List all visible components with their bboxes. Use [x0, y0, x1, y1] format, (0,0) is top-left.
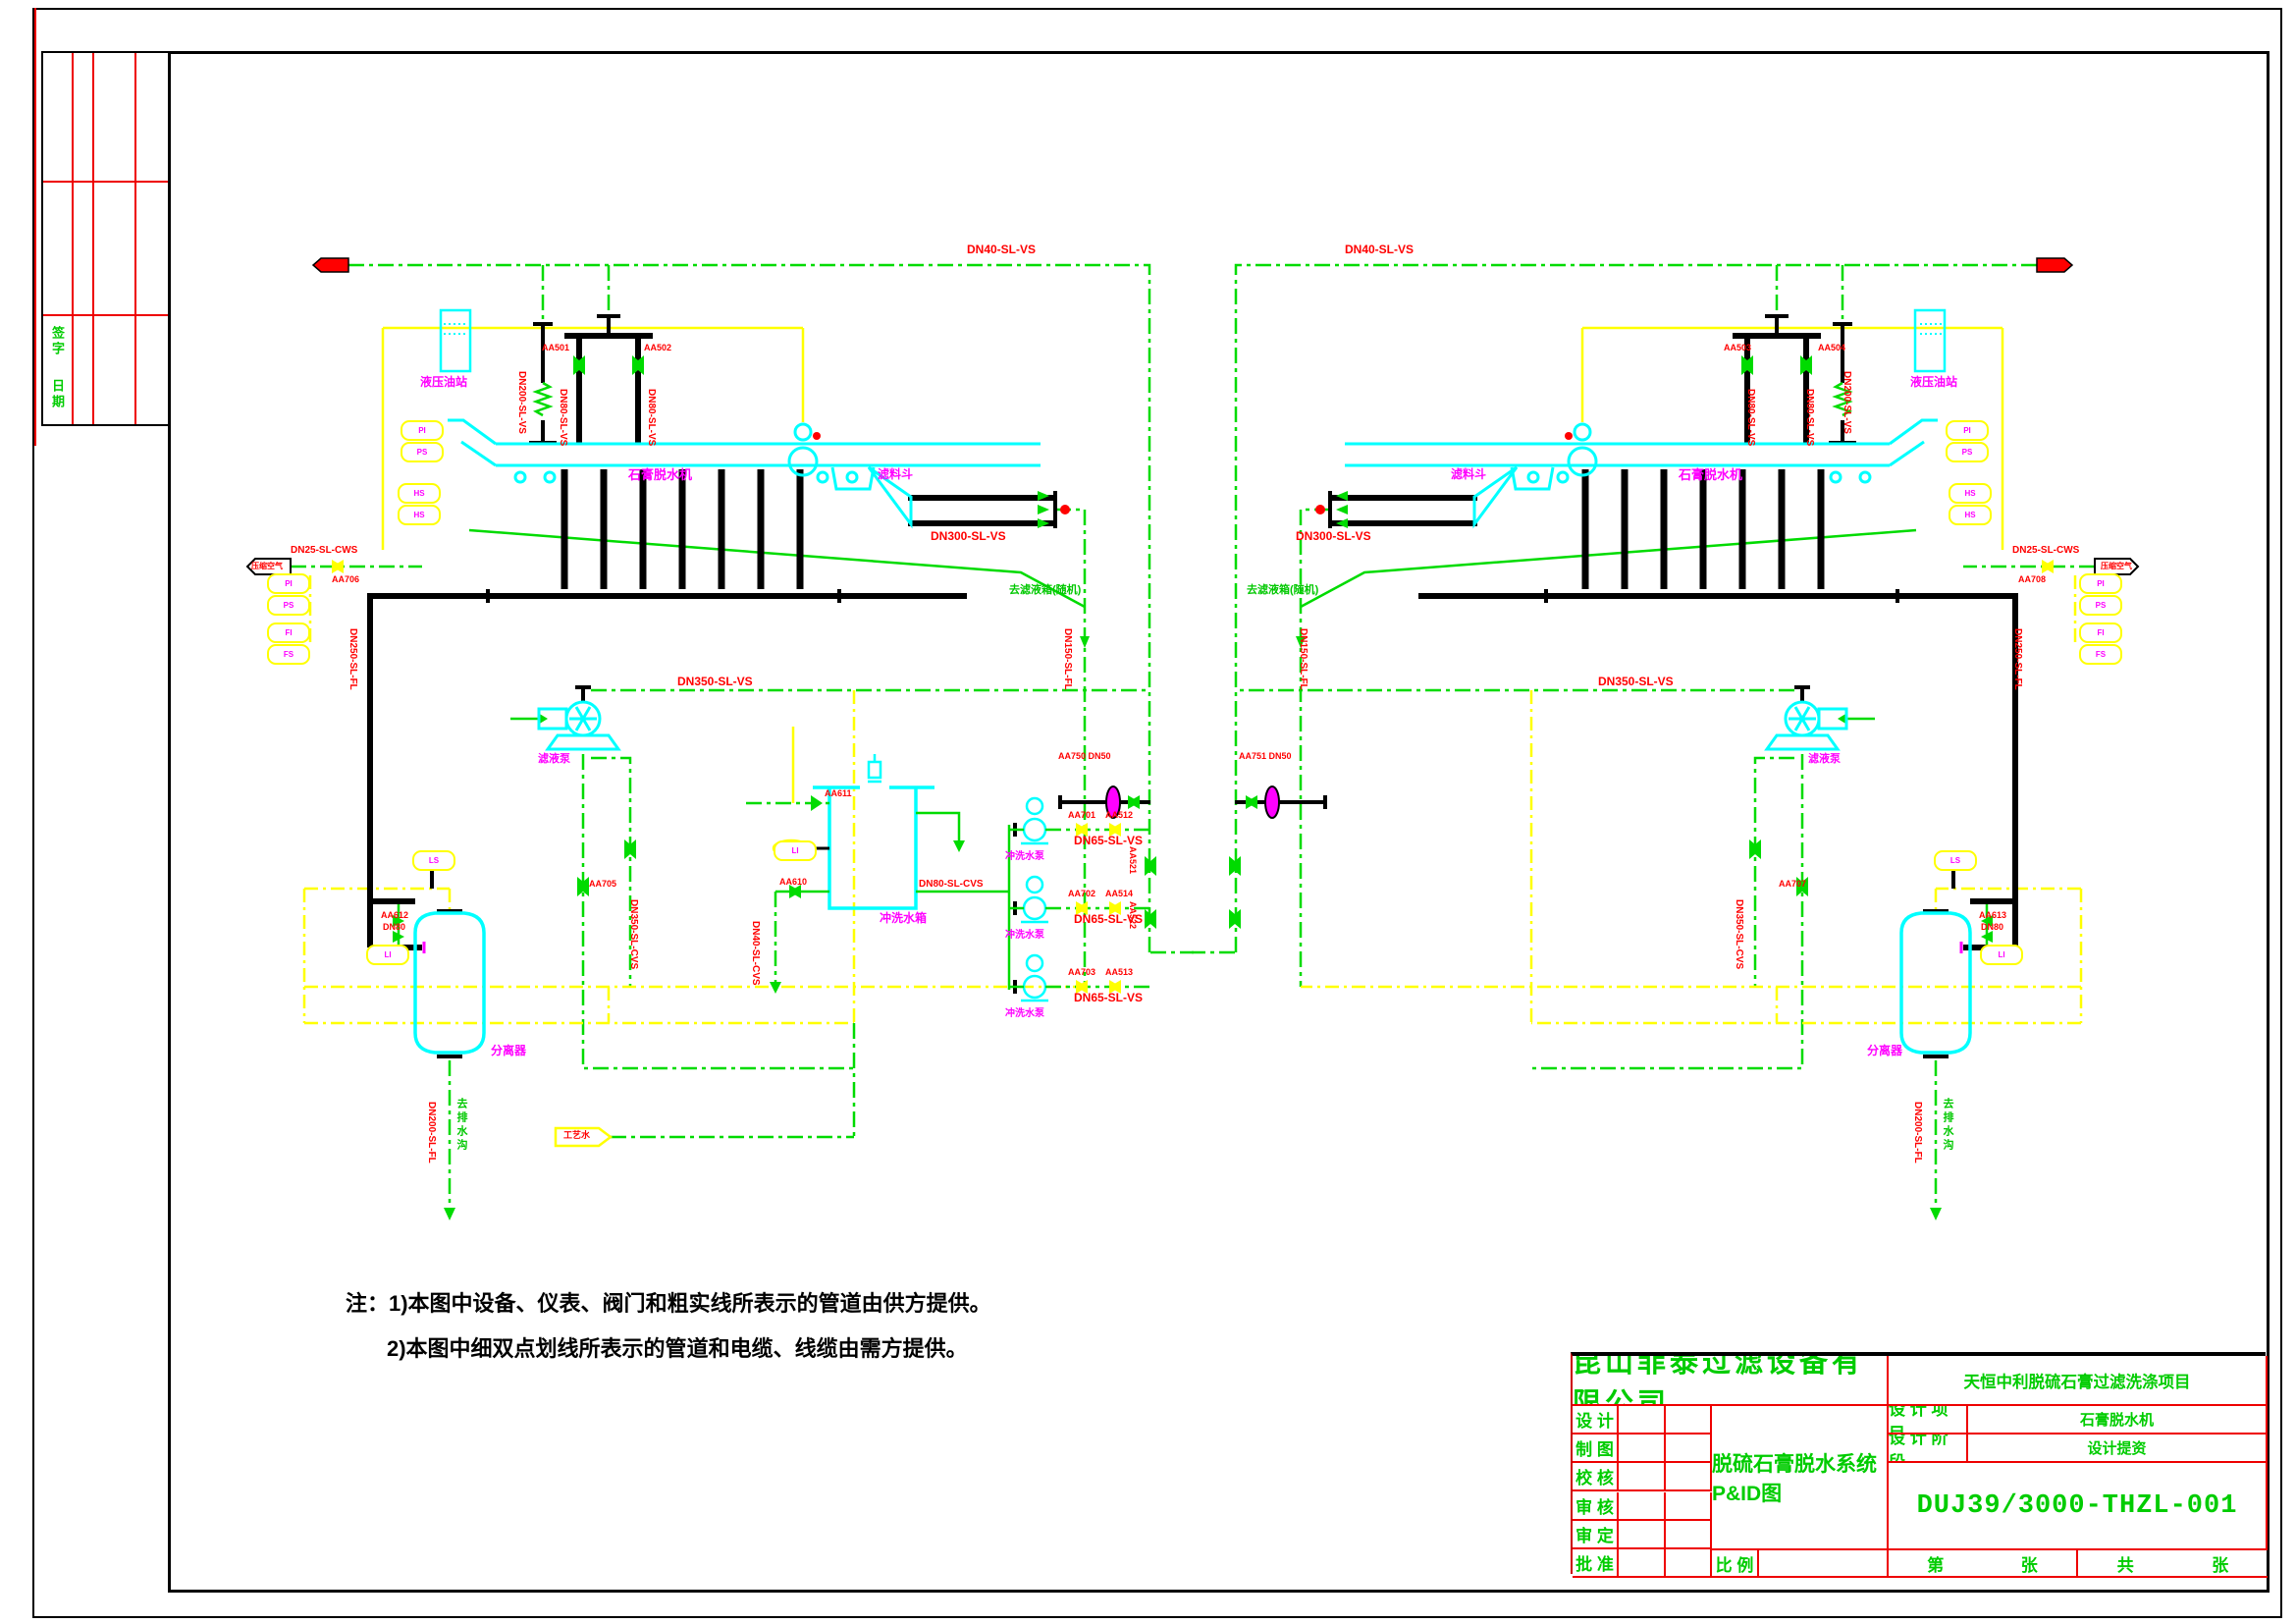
instrument-bubble: PS: [400, 442, 444, 462]
total-sheets-cell: 共 张: [2078, 1550, 2268, 1578]
pipe-label: DN80-SL-VS: [558, 389, 567, 446]
pipe-label: DN80-SL-CVS: [919, 880, 984, 890]
approval-signature-cell: [1666, 1521, 1712, 1549]
pipe-label: AA521: [1128, 846, 1137, 874]
pipe-label: AA512: [1105, 811, 1133, 820]
pipe-label: DN80-SL-VS: [646, 389, 656, 446]
pipe-label: DN40-SL-VS: [1345, 244, 1414, 255]
pipe-label: AA502: [644, 344, 671, 352]
approval-signature-cell: [1666, 1463, 1712, 1491]
scale-label: 比 例: [1712, 1550, 1759, 1578]
destination-label: 去排水沟: [1942, 1098, 1952, 1153]
pipe-label: AA612: [381, 911, 408, 920]
instrument-bubble: FS: [267, 644, 310, 665]
instrument-bubble: PS: [2079, 595, 2122, 616]
pipe-label: 压缩空气: [2101, 563, 2132, 570]
equipment-label: 滤液泵: [1808, 754, 1841, 765]
instrument-bubble: HS: [1949, 483, 1992, 504]
equipment-label: 滤料斗: [878, 468, 913, 480]
pipe-label: AA613: [1979, 911, 2006, 920]
pipe-label: AA610: [779, 878, 807, 887]
equipment-label: 冲洗水泵: [1005, 852, 1044, 862]
instrument-bubble: HS: [398, 505, 441, 525]
pipe-label: AA501: [542, 344, 569, 352]
approval-signature-cell: [1619, 1521, 1666, 1549]
sheet-label: 第: [1927, 1551, 1944, 1576]
instrument-bubble: LS: [1934, 850, 1977, 871]
instrument-bubble: LS: [412, 850, 455, 871]
design-phase-value: 设计提资: [1968, 1435, 2268, 1463]
pid-drawing-sheet: 签字 日期: [0, 0, 2296, 1624]
approval-signature-cell: [1666, 1435, 1712, 1463]
approval-signature-cell: [1666, 1492, 1712, 1521]
pipe-label: AA522: [1128, 901, 1137, 929]
project-name: 天恒中利脱硫石膏过滤洗涤项目: [1889, 1356, 2268, 1406]
equipment-label: 冲洗水泵: [1005, 1009, 1044, 1019]
pipe-label: AA611: [825, 789, 852, 798]
instrument-bubble: HS: [1949, 505, 1992, 525]
drawing-title: 脱硫石膏脱水系统P&ID图: [1712, 1406, 1889, 1550]
equipment-label: 石膏脱水机: [628, 468, 692, 481]
instrument-bubble: FI: [267, 623, 310, 643]
instrument-bubble: FS: [2079, 644, 2122, 665]
instrument-bubble: PI: [267, 573, 310, 594]
pipe-label: AA514: [1105, 890, 1133, 898]
instrument-bubble: LI: [366, 945, 409, 965]
design-item-label: 设 计 项 目: [1889, 1406, 1968, 1435]
pipe-label: DN150-SL-FL: [1298, 628, 1308, 690]
instrument-bubble: LI: [774, 840, 817, 861]
equipment-label: 冲洗水箱: [880, 912, 927, 924]
pipe-label: AA702: [1068, 890, 1095, 898]
pipe-label: DN80: [383, 923, 405, 932]
instrument-bubble: LI: [1980, 945, 2023, 965]
pipe-label: DN200-SL-VS: [516, 371, 526, 434]
sheet-number-cell: 第 张: [1889, 1550, 2078, 1578]
pipe-label: 工艺水: [563, 1131, 590, 1140]
scale-value: [1759, 1550, 1889, 1578]
pipe-label: DN150-SL-FL: [1062, 628, 1072, 690]
approval-row-label: 制 图: [1573, 1435, 1619, 1463]
pipe-label: DN80-SL-VS: [1745, 389, 1755, 446]
pipe-label: AA707: [1779, 880, 1806, 889]
pipe-label: DN350-SL-CVS: [1734, 899, 1743, 969]
approval-signature-cell: [1619, 1463, 1666, 1491]
pipe-label: AA513: [1105, 968, 1133, 977]
pipe-label: DN200-SL-VS: [1842, 371, 1851, 434]
pipe-label: DN25-SL-CWS: [2012, 546, 2079, 556]
equipment-label: 滤液泵: [538, 754, 570, 765]
equipment-label: 分离器: [1867, 1045, 1902, 1056]
design-item-value: 石膏脱水机: [1968, 1406, 2268, 1435]
instrument-bubble: PI: [400, 420, 444, 441]
pipe-label: AA750 DN50: [1058, 752, 1111, 761]
pipe-label: AA503: [1724, 344, 1751, 352]
pipe-label: DN250-SL-FL: [347, 628, 357, 690]
drawing-number: DUJ39/3000-THZL-001: [1889, 1463, 2268, 1550]
pipe-label: DN25-SL-CWS: [291, 546, 357, 556]
equipment-label: 滤料斗: [1451, 468, 1486, 480]
instrument-bubble: FI: [2079, 623, 2122, 643]
note-line-2: 2)本图中细双点划线所表示的管道和电缆、线缆由需方提供。: [387, 1331, 991, 1363]
instrument-bubble: HS: [398, 483, 441, 504]
instrument-bubble: PI: [2079, 573, 2122, 594]
sheet-unit: 张: [2021, 1551, 2038, 1576]
pipe-label: DN80: [1981, 923, 2003, 932]
instrument-bubble: PS: [1946, 442, 1989, 462]
title-block: 昆山菲泰过滤设备有限公司 天恒中利脱硫石膏过滤洗涤项目 设 计制 图校 核审 核…: [1571, 1352, 2266, 1574]
approval-row-label: 批 准: [1573, 1549, 1619, 1578]
pipe-label: DN350-SL-VS: [1598, 676, 1674, 687]
note-line-1: 注：1)本图中设备、仪表、阀门和粗实线所表示的管道由供方提供。: [346, 1286, 991, 1318]
pipe-label: DN350-SL-CVS: [628, 899, 638, 969]
approval-signature-cell: [1666, 1549, 1712, 1578]
pipe-label: DN65-SL-VS: [1074, 992, 1143, 1003]
pipe-label: DN250-SL-FL: [2012, 628, 2022, 690]
pipe-label: DN200-SL-FL: [426, 1102, 436, 1164]
pipe-label: DN80-SL-VS: [1804, 389, 1814, 446]
approval-signature-cell: [1619, 1492, 1666, 1521]
pipe-label: DN200-SL-FL: [1912, 1102, 1922, 1164]
pipe-label: DN300-SL-VS: [1296, 530, 1371, 542]
total-unit: 张: [2212, 1551, 2228, 1576]
pipe-label: AA706: [332, 575, 359, 584]
approval-row-label: 审 核: [1573, 1492, 1619, 1521]
destination-label: 去排水沟: [455, 1098, 466, 1153]
instrument-bubble: PI: [1946, 420, 1989, 441]
pipe-label: DN40-SL-VS: [967, 244, 1036, 255]
pipe-label: 压缩空气: [251, 563, 283, 570]
approval-signature-cell: [1619, 1406, 1666, 1435]
pipe-label: AA751 DN50: [1239, 752, 1292, 761]
equipment-label: 石膏脱水机: [1679, 468, 1742, 481]
approval-row-label: 校 核: [1573, 1463, 1619, 1491]
total-label: 共: [2117, 1551, 2134, 1576]
pipe-label: AA703: [1068, 968, 1095, 977]
company-name: 昆山菲泰过滤设备有限公司: [1573, 1356, 1889, 1406]
equipment-label: 冲洗水泵: [1005, 931, 1044, 941]
destination-label: 去滤液箱(随机): [1247, 585, 1318, 596]
equipment-label: 液压油站: [1910, 376, 1957, 388]
pipe-label: AA705: [589, 880, 616, 889]
instrument-bubble: PS: [267, 595, 310, 616]
approval-row-label: 审 定: [1573, 1521, 1619, 1549]
approval-signature-cell: [1666, 1406, 1712, 1435]
pipe-label: DN65-SL-VS: [1074, 835, 1143, 846]
pipe-label: AA701: [1068, 811, 1095, 820]
equipment-label: 液压油站: [420, 376, 467, 388]
pipe-label: AA504: [1818, 344, 1845, 352]
pipe-label: DN300-SL-VS: [931, 530, 1006, 542]
approval-signature-cell: [1619, 1549, 1666, 1578]
approval-row-label: 设 计: [1573, 1406, 1619, 1435]
equipment-label: 分离器: [491, 1045, 526, 1056]
design-phase-label: 设 计 阶 段: [1889, 1435, 1968, 1463]
pipe-label: DN350-SL-VS: [677, 676, 753, 687]
approval-signature-cell: [1619, 1435, 1666, 1463]
destination-label: 去滤液箱(随机): [1009, 585, 1081, 596]
pipe-label: DN40-SL-CVS: [750, 921, 760, 986]
drawing-notes: 注：1)本图中设备、仪表、阀门和粗实线所表示的管道由供方提供。 2)本图中细双点…: [346, 1286, 991, 1363]
pipe-label: AA708: [2018, 575, 2046, 584]
